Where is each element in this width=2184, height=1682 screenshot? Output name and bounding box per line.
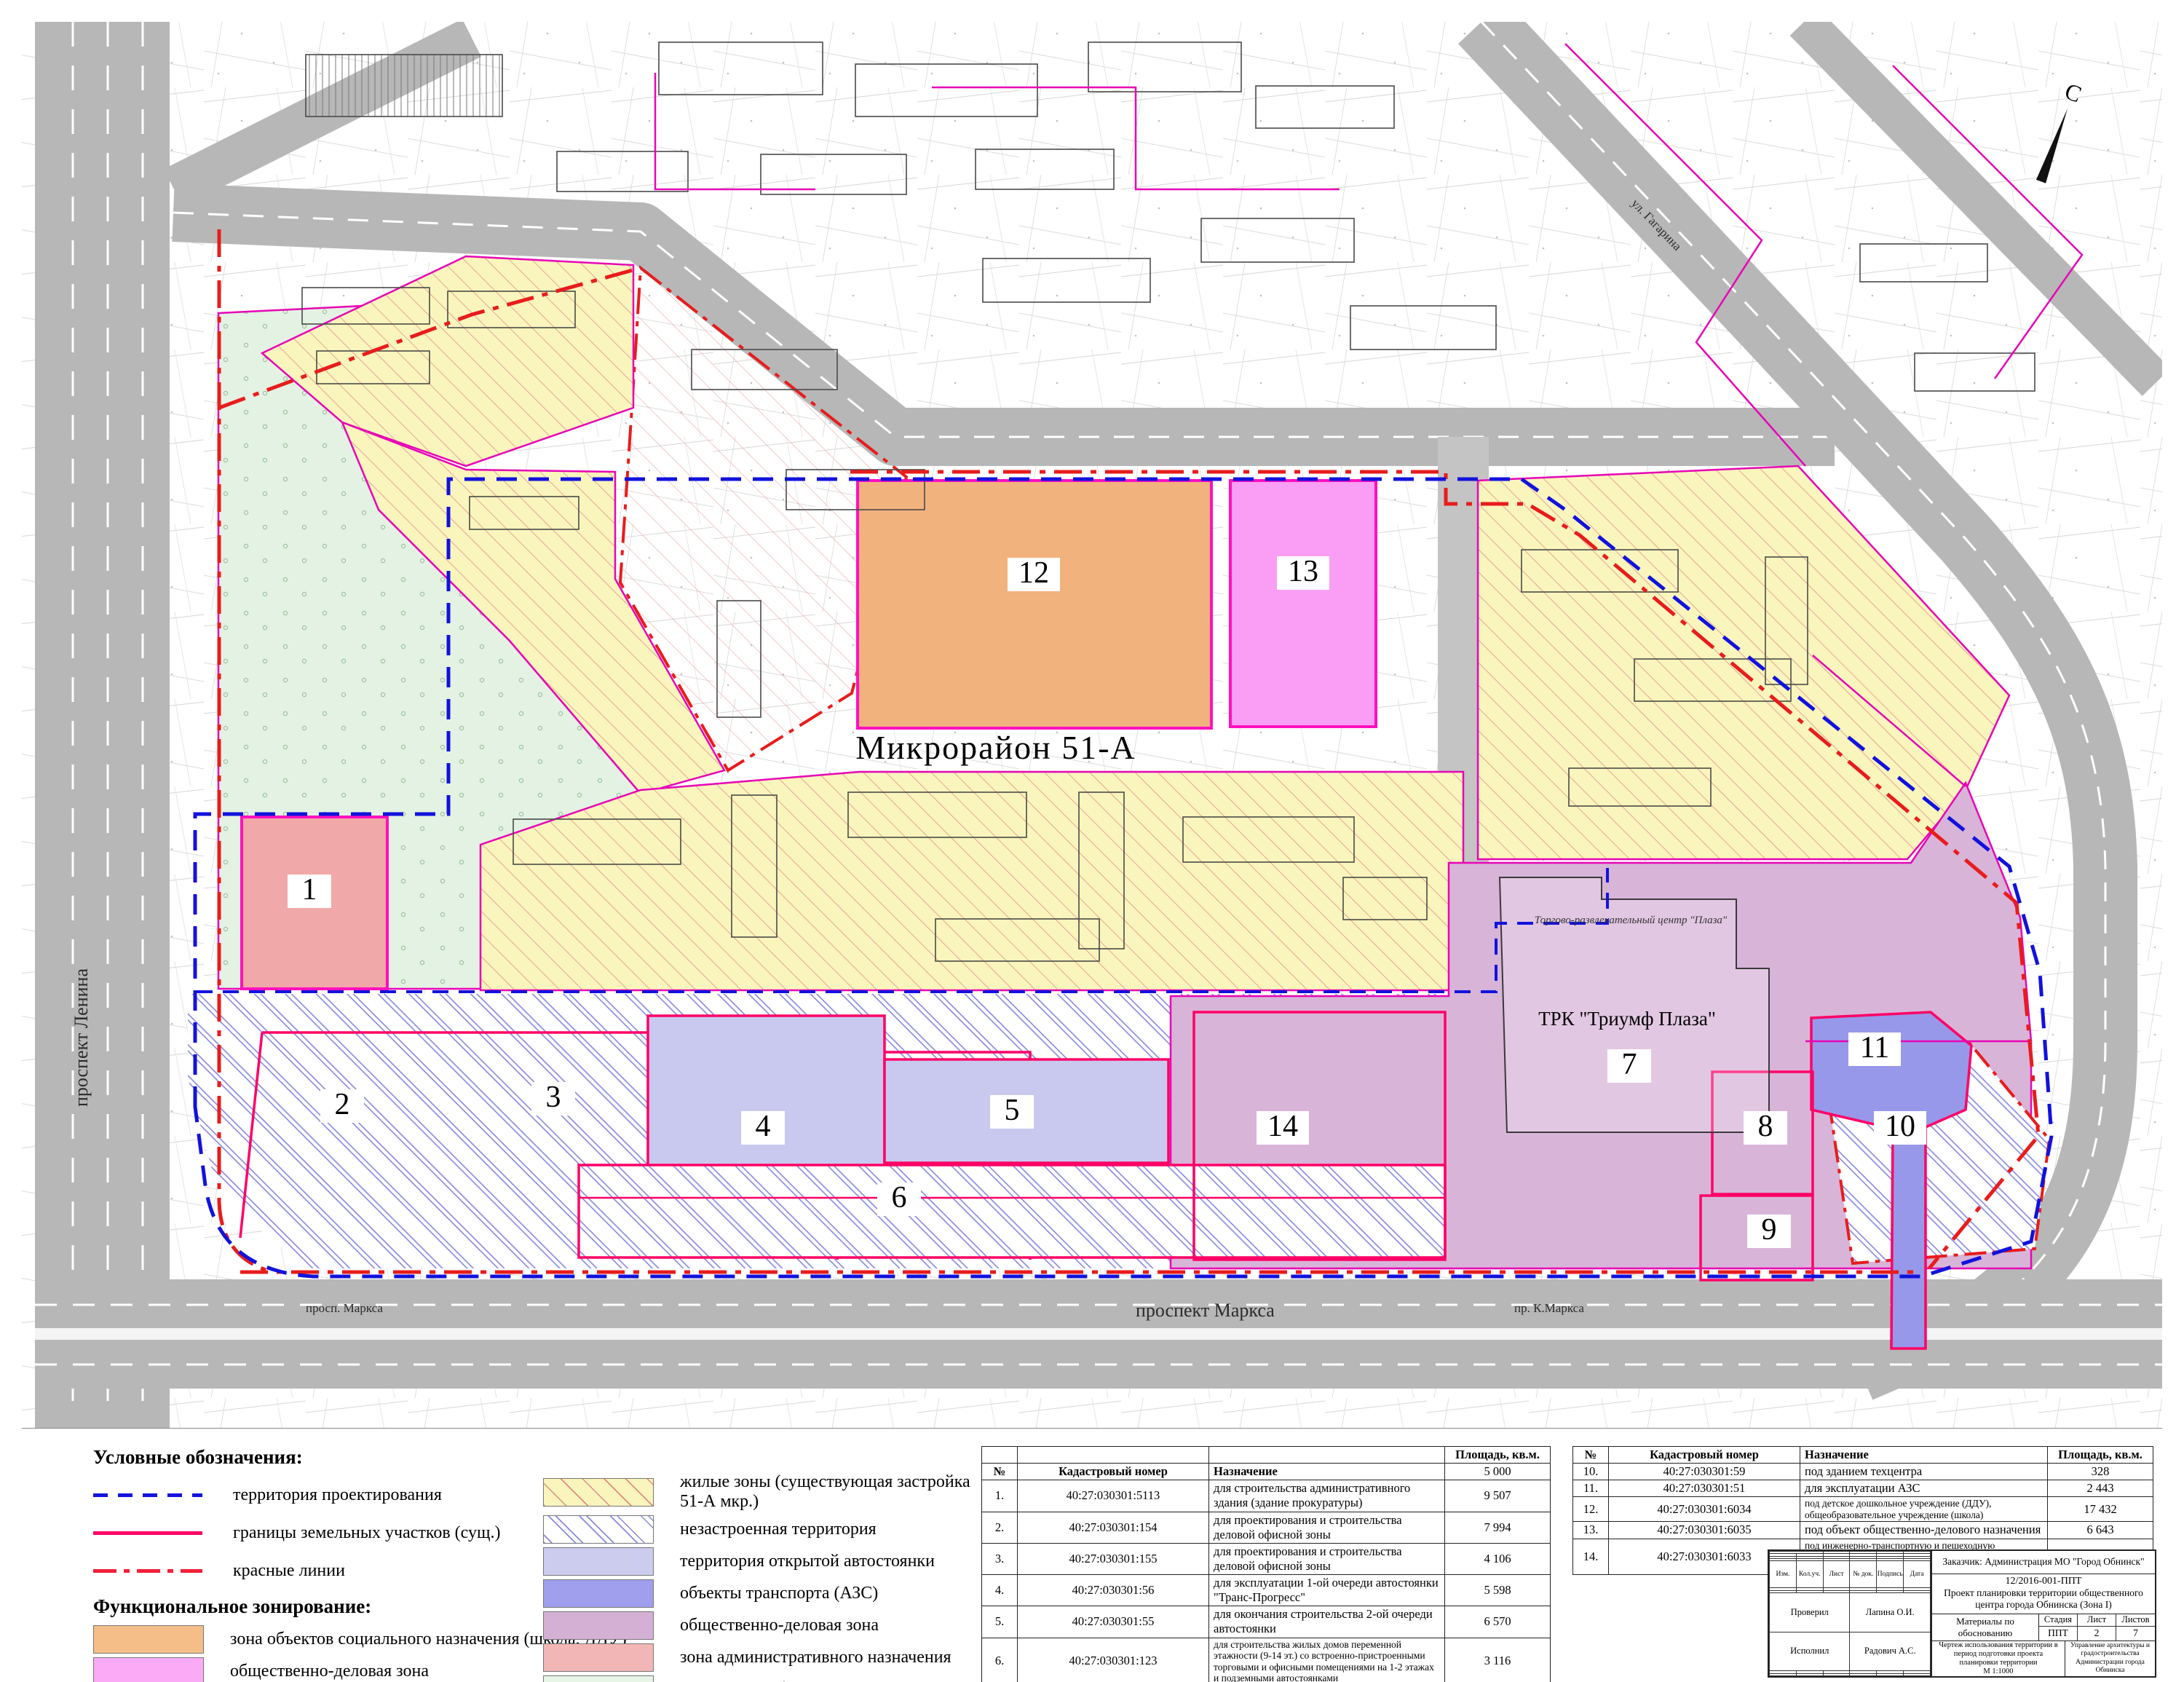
pink-swatch [93,1657,204,1682]
zone-label-12: 12 [1008,556,1060,591]
legend-title: Условные обозначения: [93,1446,974,1469]
svg-text:9: 9 [1762,1213,1777,1247]
col-koluch: Кол.уч. [1796,1561,1823,1588]
blue-hatch-swatch [543,1515,654,1544]
stage-value: ППТ [2039,1627,2078,1640]
zone-label-11: 11 [1848,1031,1901,1066]
legend-item-undeveloped: незастроенная территория [543,1515,974,1544]
svg-text:7: 7 [1622,1048,1637,1081]
col-list: Лист [1823,1561,1850,1588]
scale-label: М 1:1000 [1934,1667,2062,1676]
zone-label-3: 3 [531,1081,575,1116]
yellow-hatch-swatch [543,1478,654,1507]
svg-text:11: 11 [1860,1031,1889,1065]
magenta-line-symbol [93,1531,202,1535]
zone-label-1: 1 [288,873,331,908]
zone-strip-6 [579,1165,1445,1257]
green-swatch [543,1675,654,1682]
sheet-value: 2 [2078,1627,2116,1640]
mall-label: ТРК "Триумф Плаза" [1538,1008,1716,1030]
street-marksa-small: просп. Маркса [306,1301,383,1315]
customer-line: Заказчик: Администрация МО "Город Обнинс… [1932,1551,2155,1574]
red-dashdot-line-symbol [93,1569,202,1573]
svg-text:6: 6 [892,1181,907,1215]
zone-label-14: 14 [1257,1110,1309,1145]
col-podpis: Подпись [1877,1561,1904,1588]
svg-text:1: 1 [302,873,317,907]
legend-item-residential: жилые зоны (существующая застройка 51-А … [543,1472,974,1512]
sheets-value: 7 [2116,1627,2155,1640]
legend-right-column: жилые зоны (существующая застройка 51-А … [543,1472,974,1682]
zone-business-13 [1230,481,1376,727]
legend-item-business-purple: общественно-деловая зона [543,1611,974,1640]
zone-label-6: 6 [877,1181,921,1216]
zone-residential-mid [480,772,1463,990]
materials-label: Материалы по обоснованию [1932,1614,2039,1640]
svg-text:14: 14 [1267,1110,1298,1143]
blue-swatch [543,1579,654,1608]
zone-label-9: 9 [1747,1213,1791,1248]
zone-social-12 [858,481,1211,728]
zone-label-13: 13 [1277,555,1329,590]
drawing-title: Чертеж использования территории в период… [1932,1641,2065,1676]
organization: Управление архитектуры и градостроительс… [2065,1641,2155,1676]
parcel-table-left: Площадь, кв.м.№Кадастровый номерНазначен… [981,1446,1551,1682]
title-block: Изм. Кол.уч. Лист № док. Подпись Дата Пр… [1768,1549,2156,1678]
district-label: Микрорайон 51-А [855,729,1136,766]
zone-label-10: 10 [1874,1110,1926,1145]
zone-label-5: 5 [990,1094,1034,1129]
map-canvas: проспект Ленина проспект Маркса просп. М… [0,0,2184,1682]
legend-item-open-parking: территория открытой автостоянки [543,1547,974,1576]
project-name-block: 12/2016-001-ППТ Проект планировки террит… [1932,1574,2155,1614]
svg-text:10: 10 [1885,1110,1915,1143]
lavender-swatch [543,1547,654,1576]
title-block-revision-grid: Изм. Кол.уч. Лист № док. Подпись Дата Пр… [1769,1551,1932,1676]
doc-number: 12/2016-001-ППТ [1932,1576,2155,1587]
zone-label-4: 4 [741,1110,785,1145]
author-label: Исполнил [1770,1632,1850,1671]
street-k-marksa: пр. К.Маркса [1514,1301,1584,1315]
svg-text:3: 3 [546,1081,561,1114]
street-lenina: проспект Ленина [71,968,92,1107]
author-name: Радович А.С. [1850,1632,1931,1671]
legend-item-greenery: озеленение общего пользования [543,1675,974,1682]
blue-dashed-line-symbol [93,1493,202,1497]
col-data: Дата [1904,1561,1931,1588]
orange-swatch [93,1625,204,1654]
street-marksa: проспект Маркса [1136,1300,1275,1321]
legend-item-transport: объекты транспорта (АЗС) [543,1579,974,1608]
zone-label-2: 2 [320,1088,364,1123]
red-swatch [543,1643,654,1672]
zone-label-8: 8 [1744,1110,1787,1145]
zone-label-7: 7 [1607,1048,1651,1083]
purple-swatch [543,1611,654,1640]
stage-grid: Стадия Лист Листов ППТ 2 7 [2039,1614,2155,1640]
svg-text:8: 8 [1758,1110,1773,1143]
legend-item-admin: зона административного назначения [543,1643,974,1672]
checked-name: Лапина О.И. [1850,1592,1931,1632]
mall-sub-label: Торгово-развлекательный центр "Плаза" [1535,915,1728,926]
svg-text:12: 12 [1018,556,1049,590]
plan-sheet: проспект Ленина проспект Маркса просп. М… [0,0,2184,1682]
svg-text:4: 4 [756,1110,771,1143]
svg-text:2: 2 [335,1088,350,1121]
col-izm: Изм. [1770,1561,1797,1588]
svg-text:5: 5 [1005,1094,1020,1127]
checked-label: Проверил [1770,1592,1850,1632]
col-ndok: № док. [1850,1561,1877,1588]
legend: Условные обозначения: территория проекти… [93,1443,974,1675]
svg-text:13: 13 [1288,555,1318,588]
